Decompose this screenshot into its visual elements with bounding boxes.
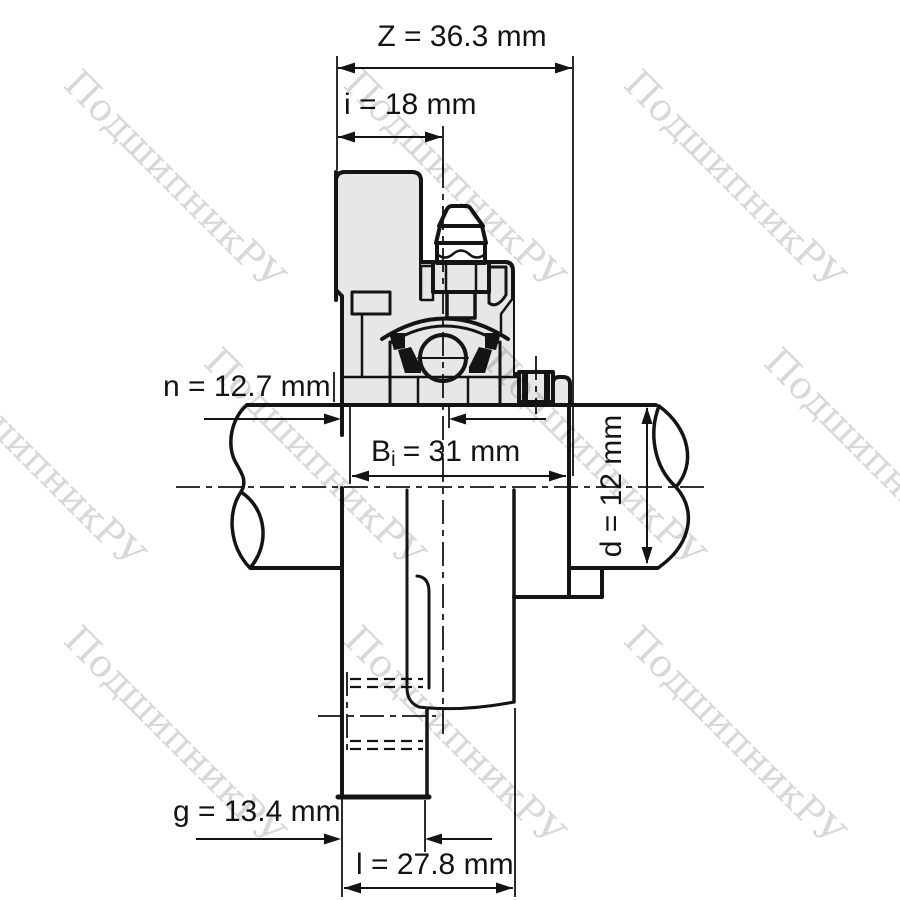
bi-value: = 31 mm	[403, 435, 521, 468]
watermark-text: ПодшипникРУ	[616, 617, 855, 856]
bi-prefix: B	[371, 435, 391, 468]
watermark-text: ПодшипникРУ	[616, 61, 855, 300]
dimension-z-label: Z = 36.3 mm	[377, 20, 546, 53]
drawing-canvas: Z = 36.3 mm i = 18 mm n = 12.7 mm Bi= 31…	[0, 0, 900, 900]
watermark-text: ПодшипникРУ	[56, 61, 295, 300]
grease-fitting-crimp	[437, 251, 485, 258]
dimension-bi-label: Bi= 31 mm	[371, 435, 520, 471]
housing-top-block-fill	[336, 172, 421, 300]
watermark-text: ПодшипникРУ	[336, 617, 575, 856]
collar-foot	[514, 568, 602, 597]
dimension-l-label: l = 27.8 mm	[356, 848, 514, 881]
break-lens-right	[654, 406, 688, 487]
watermark-text: ПодшипникРУ	[0, 339, 154, 578]
break-lens-left	[232, 492, 263, 568]
bi-subscript: i	[391, 448, 396, 471]
technical-drawing: Z = 36.3 mm i = 18 mm n = 12.7 mm Bi= 31…	[0, 0, 900, 900]
watermark-text: ПодшипникРУ	[756, 339, 900, 578]
